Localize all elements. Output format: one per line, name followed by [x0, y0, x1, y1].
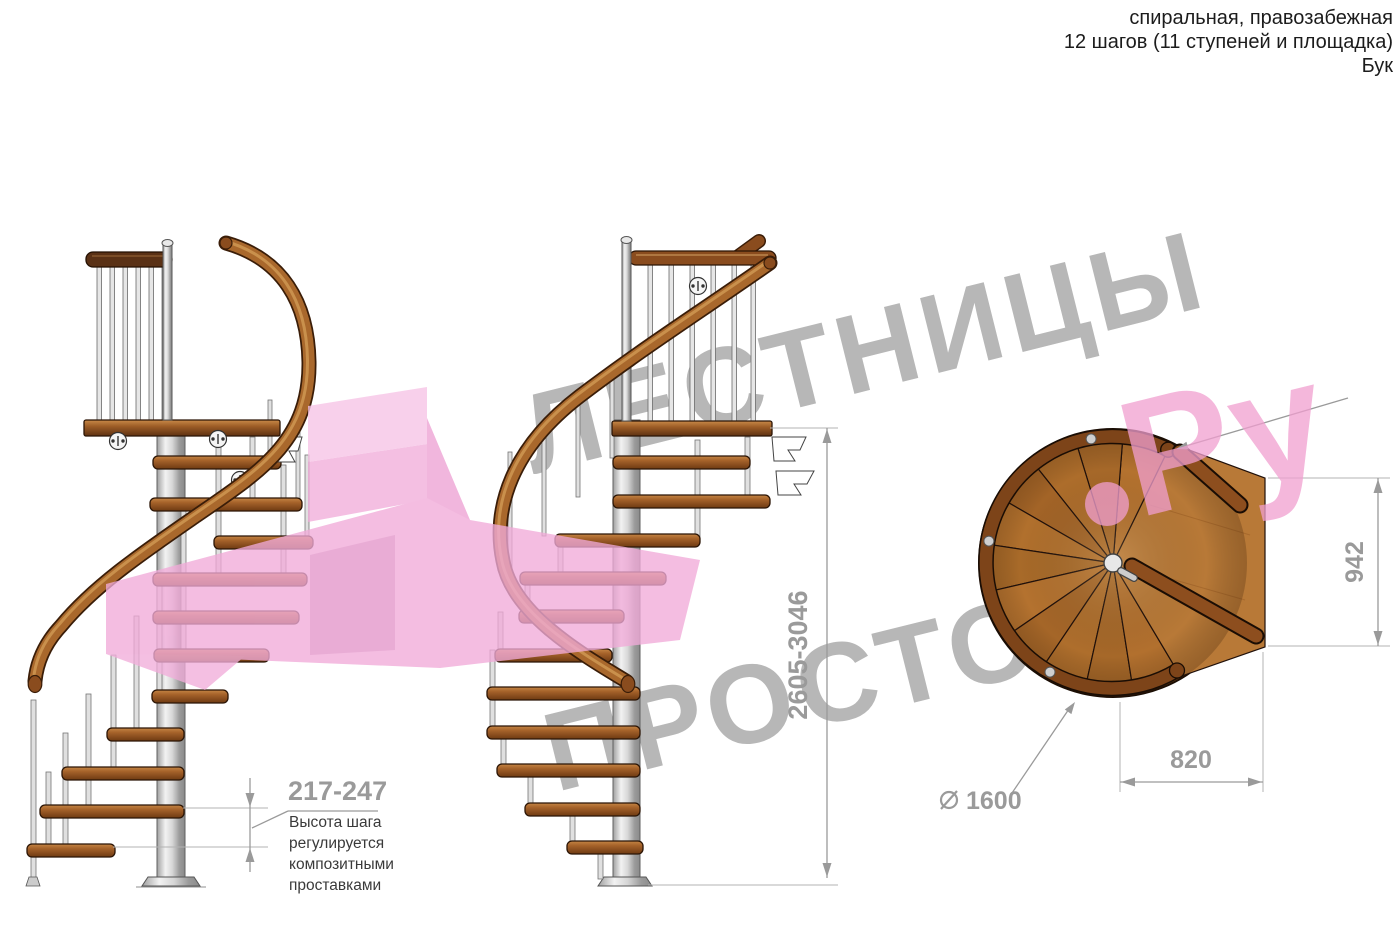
landing-width-value: 820	[1170, 746, 1212, 774]
staircase-drawing: ЛЕСТНИЦЫ ПРОСТО	[0, 0, 1400, 951]
tread	[497, 764, 640, 777]
header: спиральная, правозабежная 12 шагов (11 с…	[1064, 7, 1393, 77]
tread	[487, 687, 640, 700]
tread	[613, 456, 750, 469]
tread	[27, 844, 115, 857]
plan-baluster-connector	[1045, 667, 1055, 677]
platform-bracket	[772, 437, 806, 461]
tread	[40, 805, 184, 818]
tread	[152, 690, 228, 703]
tread	[525, 803, 640, 816]
handrail-end-cap	[621, 676, 635, 693]
platform-bracket	[776, 471, 814, 495]
plan-baluster-connector	[1086, 434, 1096, 444]
header-material: Бук	[1362, 55, 1394, 77]
landing-handrail	[629, 251, 776, 265]
dimension-step-height: 217-247 Высота шага регулируется компози…	[113, 776, 394, 894]
total-height-value: 2605-3046	[783, 590, 813, 719]
column-base	[142, 877, 200, 886]
baluster-foot	[26, 877, 40, 886]
connector-disc	[690, 278, 707, 295]
step-height-note-3: композитными	[289, 856, 394, 873]
watermark-dot	[1085, 482, 1129, 526]
diameter-value: 1600	[966, 787, 1022, 815]
landing-platform	[612, 421, 772, 436]
column-base	[598, 877, 652, 886]
newel-post	[622, 240, 631, 421]
dimension-diameter: 1600	[941, 702, 1075, 815]
header-steps: 12 шагов (11 ступеней и площадка)	[1064, 31, 1393, 53]
header-type: спиральная, правозабежная	[1129, 7, 1393, 29]
plan-baluster-connector	[984, 536, 994, 546]
tread	[567, 841, 643, 854]
tread	[62, 767, 184, 780]
tread	[107, 728, 184, 741]
tread	[487, 726, 640, 739]
landing-length-value: 942	[1341, 541, 1369, 583]
step-height-value: 217-247	[288, 776, 387, 806]
landing-handrail	[86, 252, 172, 267]
tread	[613, 495, 770, 508]
step-height-note-1: Высота шага	[289, 814, 382, 831]
handrail-end-cap	[28, 676, 42, 693]
step-height-note-2: регулируется	[289, 835, 384, 852]
watermark-suffix-ru: Ру	[1102, 324, 1346, 552]
drawing-canvas: ЛЕСТНИЦЫ ПРОСТО	[0, 0, 1400, 951]
newel-post	[163, 243, 172, 420]
step-height-note-4: проставками	[289, 877, 381, 894]
